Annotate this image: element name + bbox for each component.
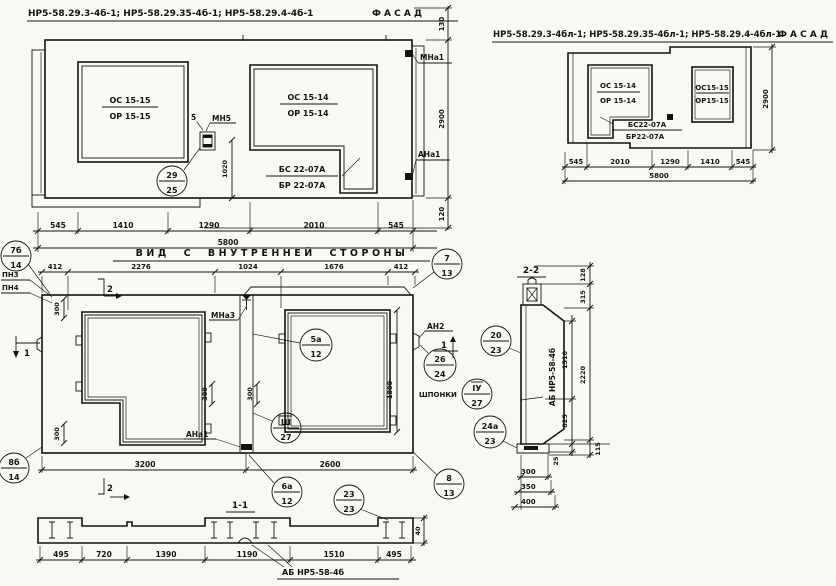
svg-text:1510: 1510 — [324, 550, 345, 559]
svg-text:495: 495 — [53, 550, 69, 559]
inner-view-window-left — [76, 312, 211, 445]
dim-1800: 1800 — [386, 380, 394, 399]
facade-mirror-window2: ОС15-15 ОР15-15 — [692, 67, 733, 122]
dim-label: 1290 — [660, 158, 680, 166]
svg-text:8б: 8б — [8, 457, 20, 467]
section-2-2: 2-2 АБ НР5-58-4б 1510 825 25 1 — [511, 262, 610, 510]
dim-120: 120 — [438, 207, 446, 222]
drawing-sheet: НР5-58.29.3-4б-1; НР5-58.29.35-4б-1; НР5… — [0, 0, 836, 586]
svg-text:7б: 7б — [10, 245, 22, 255]
svg-text:8: 8 — [446, 474, 452, 483]
svg-text:495: 495 — [386, 550, 402, 559]
svg-text:5а: 5а — [311, 335, 322, 344]
svg-text:23: 23 — [343, 505, 354, 514]
window-mark: ОС 15-15 — [109, 96, 150, 105]
svg-text:7: 7 — [444, 254, 450, 263]
window-mark: ОС 15-14 — [287, 93, 328, 102]
svg-text:Ш: Ш — [281, 418, 291, 427]
dim-label: 545 — [388, 221, 404, 230]
svg-text:128: 128 — [579, 268, 587, 282]
svg-text:300: 300 — [521, 468, 536, 476]
facade-front-window2: ОС 15-14 ОР 15-14 БС 22-07А БР 22-07А — [250, 65, 377, 193]
callout-20-23: 20 23 — [481, 326, 521, 356]
callout-24a-23: 24а 23 — [474, 416, 517, 448]
svg-text:12: 12 — [281, 497, 292, 506]
facade-front-dimensions: 545 1410 1290 2010 545 5800 130 2900 120… — [33, 5, 452, 252]
dim-label: 2010 — [610, 158, 630, 166]
svg-text:400: 400 — [521, 498, 536, 506]
svg-text:23: 23 — [484, 437, 495, 446]
dim-label: 2276 — [131, 263, 151, 271]
svg-text:300: 300 — [246, 387, 254, 401]
svg-text:300: 300 — [53, 427, 61, 441]
facade-front-mn5-embed: МН5 5 — [191, 113, 236, 150]
callout-26-24: 26 24 — [420, 345, 456, 381]
callout-3-27: Ш 27 — [253, 413, 301, 443]
facade-front-fasad-label: Ф А С А Д — [372, 9, 422, 19]
svg-text:25: 25 — [552, 456, 560, 466]
window-mark: ОР 15-14 — [600, 97, 636, 105]
panel-mark-label: АБ НР5-58-4б — [282, 567, 345, 577]
inner-view-bottom-dims: 3200 2600 — [38, 453, 417, 473]
dim-label: 3200 — [135, 460, 156, 469]
shponki-label: ШПОНКИ — [419, 391, 457, 399]
mn5-label: МН5 — [212, 114, 231, 123]
dim-label: 1410 — [700, 158, 720, 166]
svg-text:13: 13 — [441, 269, 452, 278]
dim-label: 545 — [569, 158, 584, 166]
section-1-1-title: 1-1 — [232, 501, 248, 511]
callout-8-13: 8 13 — [412, 451, 464, 499]
window-mark: ОС 15-14 — [600, 82, 636, 90]
callout-7-13: 7 13 — [413, 249, 462, 288]
dim-label: 2600 — [320, 460, 341, 469]
window-mark: ОС15-15 — [695, 84, 729, 92]
svg-text:14: 14 — [10, 261, 22, 270]
inner-view-title: ВИД С ВНУТРЕННЕЙ СТОРОНЫ — [136, 247, 409, 259]
embed-count-label: 5 — [191, 113, 196, 122]
callout-29-25: 29 25 — [157, 148, 200, 196]
svg-text:720: 720 — [96, 550, 112, 559]
dim-total-label: 5800 — [649, 172, 669, 180]
section-1-1-profile — [38, 518, 413, 543]
svg-text:350: 350 — [521, 483, 536, 491]
inner-view-labels: ПН3 ПН4 МНа3 АНа1 АН2 ШПОНКИ — [1, 264, 457, 447]
ana1-label: АНа1 — [186, 430, 208, 439]
panel-mark-vertical: АБ НР5-58-4б — [548, 348, 557, 406]
window-mark: ОР 15-15 — [109, 112, 150, 121]
dim-130: 130 — [438, 17, 446, 32]
facade-front-anchor-labels: МНа1 АНа1 — [413, 53, 452, 173]
sill-mark: БС22-07А — [628, 121, 667, 129]
svg-text:27: 27 — [280, 433, 291, 442]
facade-front-window1: ОС 15-15 ОР 15-15 — [78, 62, 188, 162]
pn3-label: ПН3 — [2, 271, 19, 279]
svg-text:27: 27 — [471, 399, 482, 408]
sill-mark: БС 22-07А — [279, 165, 326, 174]
svg-text:315: 315 — [579, 290, 587, 304]
svg-text:115: 115 — [594, 442, 602, 456]
dim-label: 1676 — [324, 263, 344, 271]
svg-text:300: 300 — [53, 302, 61, 316]
svg-text:25: 25 — [166, 186, 178, 195]
svg-text:ІУ: ІУ — [472, 384, 481, 393]
dim-label: 2010 — [304, 221, 325, 230]
dim-2900: 2900 — [762, 89, 770, 109]
dim-label: 1290 — [199, 221, 220, 230]
svg-text:23: 23 — [343, 490, 354, 499]
svg-text:14: 14 — [8, 473, 20, 482]
section-2-mark: 2 — [107, 285, 113, 295]
dim-40: 40 — [414, 526, 422, 536]
section-2-mark: 2 — [107, 484, 113, 494]
facade-front-title: НР5-58.29.3-4б-1; НР5-58.29.35-4б-1; НР5… — [28, 8, 313, 19]
section-1-mark: 1 — [24, 349, 30, 359]
dim-label: 1024 — [238, 263, 258, 271]
svg-text:23: 23 — [490, 346, 501, 355]
inner-view: ВИД С ВНУТРЕННЕЙ СТОРОНЫ 412 2276 1024 1… — [0, 241, 521, 520]
callout-23-23: 23 23 — [334, 485, 388, 520]
pn4-label: ПН4 — [2, 284, 19, 292]
callout-6a-12: 6а 12 — [249, 455, 302, 507]
mna1-label: МНа1 — [420, 53, 444, 62]
window-mark: ОР 15-14 — [287, 109, 328, 118]
callout-7b-14: 7б 14 — [1, 241, 31, 271]
dim-label: 1410 — [113, 221, 134, 230]
callout-4-27: ІУ 27 — [462, 379, 492, 409]
dim-total-label: 5800 — [218, 238, 239, 247]
callout-5a-12: 5а 12 — [253, 329, 332, 361]
svg-text:6а: 6а — [282, 482, 293, 491]
svg-text:24: 24 — [434, 370, 446, 379]
svg-text:20: 20 — [490, 331, 502, 340]
dim-1020: 1020 — [221, 159, 229, 178]
an2-label: АН2 — [427, 322, 444, 331]
facade-front-view: НР5-58.29.3-4б-1; НР5-58.29.35-4б-1; НР5… — [27, 5, 458, 252]
svg-text:13: 13 — [443, 489, 454, 498]
section-2-2-title: 2-2 — [523, 266, 539, 276]
mna3-label: МНа3 — [211, 311, 235, 320]
svg-text:300: 300 — [201, 387, 209, 401]
dim-2900: 2900 — [438, 109, 446, 129]
facade-mirror-window1: ОС 15-14 ОР 15-14 БС22-07А БР22-07А — [588, 65, 682, 141]
svg-text:24а: 24а — [482, 422, 499, 431]
facade-mirror-title: НР5-58.29.3-4бл-1; НР5-58.29.35-4бл-1; Н… — [493, 29, 781, 40]
svg-text:26: 26 — [434, 355, 446, 364]
svg-text:1190: 1190 — [237, 550, 258, 559]
svg-text:1390: 1390 — [156, 550, 177, 559]
inner-view-top-dims: 412 2276 1024 1676 412 — [38, 263, 419, 310]
window-mark: ОР15-15 — [695, 97, 729, 105]
svg-text:2220: 2220 — [579, 365, 587, 384]
callout-8b-14: 8б 14 — [0, 447, 42, 483]
facade-mirror-view: НР5-58.29.3-4бл-1; НР5-58.29.35-4бл-1; Н… — [492, 29, 833, 184]
facade-mirror-fasad-label: Ф А С А Д — [778, 30, 828, 40]
dim-label: 412 — [48, 263, 63, 271]
dim-label: 412 — [394, 263, 409, 271]
sill-mark: БР 22-07А — [279, 181, 326, 190]
svg-text:12: 12 — [310, 350, 321, 359]
inner-view-window-right — [279, 310, 396, 432]
panel-drawing: НР5-58.29.3-4б-1; НР5-58.29.35-4б-1; НР5… — [0, 0, 836, 586]
sill-mark: БР22-07А — [626, 133, 665, 141]
dim-label: 545 — [50, 221, 66, 230]
svg-text:1510: 1510 — [561, 350, 569, 369]
svg-text:825: 825 — [561, 414, 569, 428]
svg-text:29: 29 — [166, 171, 178, 180]
ana1-label: АНа1 — [418, 150, 440, 159]
dim-label: 545 — [736, 158, 751, 166]
